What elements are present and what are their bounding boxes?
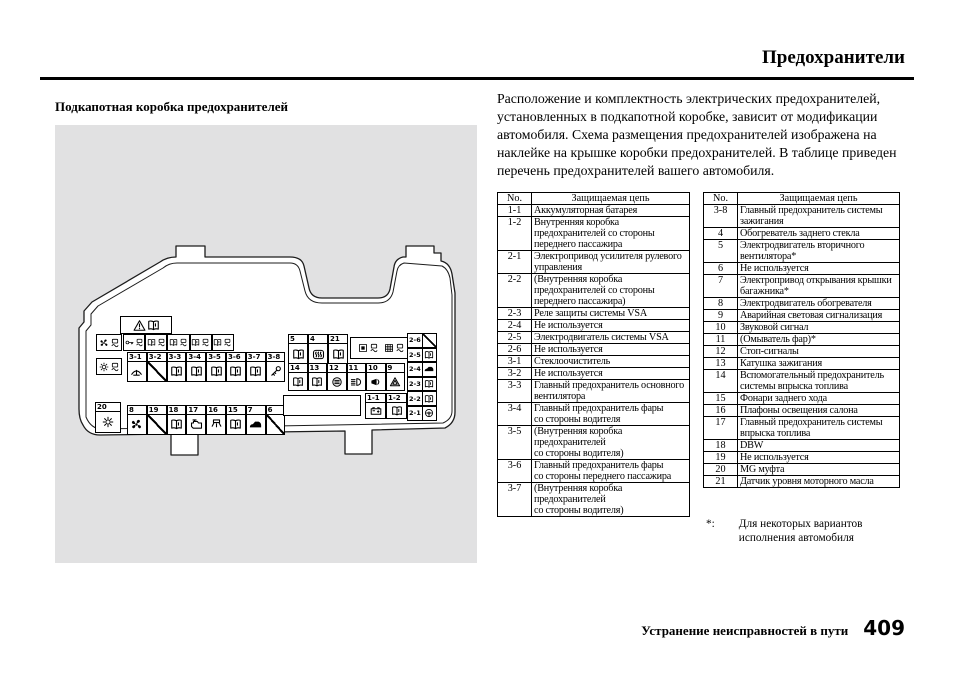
battery-icon	[370, 405, 382, 417]
fuse-slot-symbol	[328, 373, 346, 390]
section-heading: Подкапотная коробка предохранителей	[55, 99, 288, 115]
table-row: 3-8Главный предохранитель системы зажига…	[704, 205, 900, 228]
fuse-circuit: Вспомогательный предохранитель системы в…	[738, 370, 900, 393]
empty-slot	[148, 415, 166, 434]
fuse-no: 9	[704, 310, 738, 322]
fuse-no: 20	[704, 464, 738, 476]
fuse-slot-number: 2-2	[408, 392, 423, 405]
fuse-no: 3-7	[498, 483, 532, 517]
fuse-slot-1-2: 1-2	[386, 393, 407, 419]
table-header-row: No. Защищаемая цепь	[498, 193, 690, 205]
fuse-slot-2-4: 2-4	[407, 362, 437, 377]
fuse-slot-number: 20	[96, 403, 120, 412]
fuse-slot-symbol	[309, 344, 327, 364]
fuse-slot-number: 3-5	[207, 353, 225, 362]
table-row: 14Вспомогательный предохранитель системы…	[704, 370, 900, 393]
empty-slot	[423, 334, 436, 347]
fuse-slot-symbol	[423, 378, 436, 391]
fuse-slot-2-2: 2-2	[407, 391, 437, 406]
fuse-no: 2-1	[498, 251, 532, 274]
icon-pair-cell	[123, 334, 145, 351]
fuse-no: 13	[704, 358, 738, 370]
table-row: 10Звуковой сигнал	[704, 322, 900, 334]
fuse-slot-number: 11	[348, 364, 366, 373]
table-row: 3-4Главный предохранитель фары со сторон…	[498, 403, 690, 426]
fuse-slot-symbol	[387, 373, 405, 390]
blank-label-box	[283, 395, 361, 416]
fuse-icon	[135, 338, 144, 347]
table-row: 4Обогреватель заднего стекла	[704, 228, 900, 240]
fuse-no: 16	[704, 405, 738, 417]
fuse-slot-13: 13	[308, 363, 328, 391]
footer-section-title: Устранение неисправностей в пути	[641, 623, 848, 639]
fuse-slot-number: 3-7	[247, 353, 265, 362]
trunk-icon	[424, 364, 434, 374]
fuse-slot-symbol	[187, 362, 205, 381]
grid-icon	[384, 343, 394, 353]
fuse-slot-number: 4	[309, 335, 327, 344]
headlight-icon	[350, 376, 362, 388]
table-row: 7Электропривод открывания крышки багажни…	[704, 275, 900, 298]
column-header-circuit: Защищаемая цепь	[738, 193, 900, 205]
fuse-slot-3-1: 3-1	[127, 352, 147, 382]
hazard-icon	[389, 376, 401, 388]
fuse-no: 14	[704, 370, 738, 393]
fuse-slot-3-6: 3-6	[226, 352, 246, 382]
table-row: 9Аварийная световая сигнализация	[704, 310, 900, 322]
fuse-slot-symbol	[227, 415, 245, 434]
horn-icon	[370, 376, 382, 388]
table-row: 2-4Не используется	[498, 320, 690, 332]
book-icon	[311, 376, 323, 388]
wiper-icon	[130, 365, 143, 378]
table-row: 3-6Главный предохранитель фары со сторон…	[498, 460, 690, 483]
fuse-no: 21	[704, 476, 738, 488]
fuse-slot-2-5: 2-5	[407, 348, 437, 363]
fuse-slot-symbol	[148, 415, 166, 434]
fuse-circuit: (Омыватель фар)*	[738, 334, 900, 346]
fuse-circuit: Аварийная световая сигнализация	[738, 310, 900, 322]
ignition-icon	[269, 365, 282, 378]
fuse-slot-1-1: 1-1	[365, 393, 386, 419]
fuse-circuit: Обогреватель заднего стекла	[738, 228, 900, 240]
book-icon	[424, 379, 434, 389]
fuse-slot-3-4: 3-4	[186, 352, 206, 382]
fuse-slot-symbol	[423, 349, 436, 362]
fuse-slot-number: 15	[227, 406, 245, 415]
fuse-no: 4	[704, 228, 738, 240]
fuse-slot-number: 17	[187, 406, 205, 415]
fuse-no: 8	[704, 298, 738, 310]
fuse-table-left-body: 1-1Аккумуляторная батарея1-2Внутренняя к…	[498, 205, 690, 517]
book-icon	[170, 365, 183, 378]
fuse-no: 3-3	[498, 380, 532, 403]
fuse-icon	[110, 338, 120, 348]
table-row: 6Не используется	[704, 263, 900, 275]
left-icon-pair	[96, 334, 122, 351]
fuse-slot-symbol	[366, 403, 385, 418]
fuse-slot-symbol	[168, 415, 186, 434]
fuse-slot-number: 13	[309, 364, 327, 373]
fuse-slot-number: 3-1	[128, 353, 146, 362]
fuse-slot-2-6: 2-6	[407, 333, 437, 348]
icon-pair	[384, 343, 405, 353]
fuse-slot-11: 11	[347, 363, 367, 391]
fuse-circuit: (Внутренняя коробка предохранителей со с…	[532, 274, 690, 308]
fuse-circuit: Электропривод усилителя рулевого управле…	[532, 251, 690, 274]
table-row: 17Главный предохранитель системы впрыска…	[704, 417, 900, 440]
fuse-circuit: Стоп-сигналы	[738, 346, 900, 358]
key-icon	[125, 338, 134, 347]
fuse-circuit: DBW	[738, 440, 900, 452]
icon-pair-cell	[145, 334, 167, 351]
table-row: 5Электродвигатель вторичного вентилятора…	[704, 240, 900, 263]
footnote-marker: *:	[706, 517, 715, 545]
fuse-slot-3-7: 3-7	[246, 352, 266, 382]
fan-icon	[130, 418, 143, 431]
column-header-no: No.	[498, 193, 532, 205]
sun-icon	[99, 362, 109, 372]
fuse-slot-2-3: 2-3	[407, 377, 437, 392]
fuse-no: 2-6	[498, 344, 532, 356]
fuse-slot-12: 12	[327, 363, 347, 391]
fuse-slot-symbol	[247, 362, 265, 381]
fuse-circuit: Электродвигатель вторичного вентилятора*	[738, 240, 900, 263]
fuse-slot-3-2: 3-2	[147, 352, 167, 382]
table-row: 3-1Стеклоочиститель	[498, 356, 690, 368]
fuse-slot-5: 5	[288, 334, 308, 365]
box-icon	[358, 343, 368, 353]
fuse-slot-19: 19	[147, 405, 167, 435]
table-row: 2-5Электродвигатель системы VSA	[498, 332, 690, 344]
fuse-slot-symbol	[289, 344, 307, 364]
fuse-circuit: Электродвигатель системы VSA	[532, 332, 690, 344]
fuse-slot-10: 10	[366, 363, 386, 391]
fuse-circuit: Не используется	[738, 452, 900, 464]
warning-label-box	[120, 316, 172, 334]
fuse-slot-number: 12	[328, 364, 346, 373]
fuse-slot-number: 14	[289, 364, 307, 373]
table-row: 21Датчик уровня моторного масла	[704, 476, 900, 488]
fuse-slot-8: 8	[127, 405, 147, 435]
sun-icon	[102, 416, 114, 428]
fuse-icon	[179, 338, 188, 347]
book-icon	[210, 365, 223, 378]
book-icon	[229, 418, 242, 431]
book-icon	[147, 319, 160, 332]
book-icon	[332, 348, 345, 361]
fuse-slot-number: 2-1	[408, 407, 423, 420]
fuse-circuit: (Внутренняя коробка предохранителей со с…	[532, 426, 690, 460]
fuse-slot-3-3: 3-3	[167, 352, 187, 382]
fuse-no: 12	[704, 346, 738, 358]
fuse-circuit: Фонари заднего хода	[738, 393, 900, 405]
fuse-no: 15	[704, 393, 738, 405]
fuse-slot-symbol	[128, 415, 146, 434]
fuse-no: 3-6	[498, 460, 532, 483]
fuse-slot-number: 16	[207, 406, 225, 415]
fuse-slot-number: 1-2	[387, 394, 406, 403]
fuse-slot-number: 2-6	[408, 334, 423, 347]
fuse-circuit: Главный предохранитель фары со стороны в…	[532, 403, 690, 426]
fuse-slot-symbol	[329, 344, 347, 364]
fuse-slot-number: 2-3	[408, 378, 423, 391]
steering-icon	[424, 408, 434, 418]
page-title: Предохранители	[762, 47, 905, 69]
table-row: 2-1Электропривод усилителя рулевого упра…	[498, 251, 690, 274]
fuse-slot-symbol	[367, 373, 385, 390]
fuse-slot-14: 14	[288, 363, 308, 391]
table-row: 8Электродвигатель обогревателя	[704, 298, 900, 310]
fuse-slot-symbol	[96, 412, 120, 432]
fuse-circuit: Главный предохранитель фары со стороны п…	[532, 460, 690, 483]
fuse-slot-9: 9	[386, 363, 406, 391]
right-icon-box	[350, 337, 412, 359]
fuse-slot-symbol	[423, 334, 436, 347]
fuse-no: 2-5	[498, 332, 532, 344]
fuse-slot-15: 15	[226, 405, 246, 435]
fuse-no: 11	[704, 334, 738, 346]
fuse-slot-4: 4	[308, 334, 328, 365]
fuse-slot-number: 3-6	[227, 353, 245, 362]
fuse-slot-number: 3-3	[168, 353, 186, 362]
book-icon	[391, 405, 403, 417]
table-row: 3-5(Внутренняя коробка предохранителей с…	[498, 426, 690, 460]
table-header-row: No. Защищаемая цепь	[704, 193, 900, 205]
fuse-slot-21: 21	[328, 334, 348, 365]
fuse-slot-number: 2-5	[408, 349, 423, 362]
fuse-icon	[201, 338, 210, 347]
book-icon	[213, 338, 222, 347]
warning-icon	[133, 319, 146, 332]
fuse-icon	[157, 338, 166, 347]
book-icon	[424, 394, 434, 404]
icon-pair-cell	[167, 334, 189, 351]
empty-slot	[267, 415, 285, 434]
column-header-circuit: Защищаемая цепь	[532, 193, 690, 205]
fuse-circuit: Звуковой сигнал	[738, 322, 900, 334]
fuse-slot-number: 3-4	[187, 353, 205, 362]
intro-paragraph: Расположение и комплектность электрическ…	[497, 90, 909, 180]
table-row: 15Фонари заднего хода	[704, 393, 900, 405]
fuse-no: 3-8	[704, 205, 738, 228]
footnote: *: Для некоторых вариантов исполнения ав…	[706, 517, 863, 545]
fuse-circuit: Не используется	[532, 344, 690, 356]
fuse-slot-number: 3-8	[267, 353, 285, 362]
fuse-slot-symbol	[148, 362, 166, 381]
book-icon	[190, 365, 203, 378]
fuse-no: 2-2	[498, 274, 532, 308]
footnote-text: Для некоторых вариантов исполнения автом…	[739, 517, 863, 545]
book-icon	[191, 338, 200, 347]
book-icon	[292, 348, 305, 361]
fuse-icon	[223, 338, 232, 347]
fuse-slot-symbol	[267, 415, 285, 434]
fuse-slot-2-1: 2-1	[407, 406, 437, 421]
fuse-circuit: Датчик уровня моторного масла	[738, 476, 900, 488]
left-icon-pair	[96, 358, 122, 375]
fuse-table-right-body: 3-8Главный предохранитель системы зажига…	[704, 205, 900, 488]
table-row: 1-2Внутренняя коробка предохранителей со…	[498, 217, 690, 251]
fuse-slot-number: 6	[267, 406, 285, 415]
fuse-slot-symbol	[207, 415, 225, 434]
book-icon	[170, 418, 183, 431]
fuse-circuit: Плафоны освещения салона	[738, 405, 900, 417]
fuse-slot-symbol	[423, 392, 436, 405]
table-row: 2-2(Внутренняя коробка предохранителей с…	[498, 274, 690, 308]
fuse-circuit: Реле защиты системы VSA	[532, 308, 690, 320]
fuse-circuit: Не используется	[532, 320, 690, 332]
fuse-slot-number: 10	[367, 364, 385, 373]
fuse-slot-number: 21	[329, 335, 347, 344]
fuse-circuit: Стеклоочиститель	[532, 356, 690, 368]
fuse-circuit: Катушка зажигания	[738, 358, 900, 370]
empty-slot	[148, 362, 166, 381]
fuse-no: 17	[704, 417, 738, 440]
fuse-no: 5	[704, 240, 738, 263]
book-icon	[229, 365, 242, 378]
fuse-slot-20: 20	[95, 402, 121, 433]
fuse-no: 2-4	[498, 320, 532, 332]
book-icon	[169, 338, 178, 347]
table-row: 13Катушка зажигания	[704, 358, 900, 370]
table-row: 16Плафоны освещения салона	[704, 405, 900, 417]
fuse-circuit: Аккумуляторная батарея	[532, 205, 690, 217]
icon-pair	[358, 343, 379, 353]
fuse-panel: 203-13-23-33-43-53-63-73-881918171615765…	[55, 125, 477, 563]
fuse-circuit: Не используется	[532, 368, 690, 380]
fuse-no: 3-2	[498, 368, 532, 380]
washer-icon	[331, 376, 343, 388]
fuse-slot-3-5: 3-5	[206, 352, 226, 382]
fuse-icon	[395, 343, 405, 353]
book-icon	[249, 365, 262, 378]
fuse-circuit: Электродвигатель обогревателя	[738, 298, 900, 310]
fuse-circuit: Электропривод открывания крышки багажник…	[738, 275, 900, 298]
fuse-no: 1-1	[498, 205, 532, 217]
fuse-circuit: MG муфта	[738, 464, 900, 476]
fuse-no: 3-1	[498, 356, 532, 368]
table-row: 11(Омыватель фар)*	[704, 334, 900, 346]
fuse-slot-symbol	[168, 362, 186, 381]
book-icon	[292, 376, 304, 388]
fuse-slot-symbol	[227, 362, 245, 381]
fuse-slot-3-8: 3-8	[266, 352, 286, 382]
fuse-slot-number: 2-4	[408, 363, 423, 376]
page-number: 409	[863, 616, 905, 640]
title-rule	[40, 77, 914, 80]
fuse-slot-number: 5	[289, 335, 307, 344]
table-row: 18DBW	[704, 440, 900, 452]
fuse-circuit: (Внутренняя коробка предохранителей со с…	[532, 483, 690, 517]
fuse-slot-symbol	[267, 362, 285, 381]
fuse-slot-number: 18	[168, 406, 186, 415]
fuse-circuit: Главный предохранитель системы впрыска т…	[738, 417, 900, 440]
icon-pair-cell	[212, 334, 234, 351]
defroster-icon	[312, 348, 325, 361]
fuse-slot-symbol	[423, 407, 436, 420]
fuse-icon	[369, 343, 379, 353]
fuse-slot-16: 16	[206, 405, 226, 435]
fuse-no: 1-2	[498, 217, 532, 251]
fuse-no: 2-3	[498, 308, 532, 320]
table-row: 12Стоп-сигналы	[704, 346, 900, 358]
fuse-box-diagram: 203-13-23-33-43-53-63-73-881918171615765…	[55, 125, 477, 563]
table-row: 3-7(Внутренняя коробка предохранителей с…	[498, 483, 690, 517]
table-row: 2-6Не используется	[498, 344, 690, 356]
fuse-slot-symbol	[128, 362, 146, 381]
book-icon	[147, 338, 156, 347]
fuse-slot-symbol	[187, 415, 205, 434]
fuse-slot-number: 3-2	[148, 353, 166, 362]
icon-pair-cell	[190, 334, 212, 351]
fuse-circuit: Не используется	[738, 263, 900, 275]
fuse-slot-18: 18	[167, 405, 187, 435]
fuse-circuit: Внутренняя коробка предохранителей со ст…	[532, 217, 690, 251]
table-row: 19Не используется	[704, 452, 900, 464]
fuse-circuit: Главный предохранитель основного вентиля…	[532, 380, 690, 403]
fuse-table-right: No. Защищаемая цепь 3-8Главный предохран…	[703, 192, 900, 488]
fuse-slot-number: 19	[148, 406, 166, 415]
fuse-slot-17: 17	[186, 405, 206, 435]
book-icon	[424, 350, 434, 360]
fuse-slot-symbol	[247, 415, 265, 434]
fuse-table-left: No. Защищаемая цепь 1-1Аккумуляторная ба…	[497, 192, 690, 517]
table-row: 2-3Реле защиты системы VSA	[498, 308, 690, 320]
fuse-slot-symbol	[289, 373, 307, 390]
fuse-slot-number: 9	[387, 364, 405, 373]
fuse-slot-symbol	[309, 373, 327, 390]
fuse-slot-symbol	[387, 403, 406, 418]
fuse-slot-number: 1-1	[366, 394, 385, 403]
fuse-no: 3-5	[498, 426, 532, 460]
fuse-no: 3-4	[498, 403, 532, 426]
fuse-no: 10	[704, 322, 738, 334]
page-footer: Устранение неисправностей в пути 409	[641, 616, 905, 640]
fuse-circuit: Главный предохранитель системы зажигания	[738, 205, 900, 228]
fuse-no: 19	[704, 452, 738, 464]
column-header-no: No.	[704, 193, 738, 205]
fuse-slot-symbol	[207, 362, 225, 381]
fan-icon	[99, 338, 109, 348]
fuse-icon	[110, 362, 120, 372]
fuse-slot-symbol	[423, 363, 436, 376]
fuse-no: 6	[704, 263, 738, 275]
fuse-no: 7	[704, 275, 738, 298]
fuse-slot-number: 7	[247, 406, 265, 415]
fuse-slot-7: 7	[246, 405, 266, 435]
cabin-light-icon	[210, 418, 223, 431]
engine-icon	[190, 418, 203, 431]
trunk-icon	[249, 418, 262, 431]
table-row: 3-3Главный предохранитель основного вент…	[498, 380, 690, 403]
table-row: 1-1Аккумуляторная батарея	[498, 205, 690, 217]
table-row: 3-2Не используется	[498, 368, 690, 380]
fuse-slot-symbol	[348, 373, 366, 390]
table-row: 20MG муфта	[704, 464, 900, 476]
fuse-no: 18	[704, 440, 738, 452]
fuse-slot-number: 8	[128, 406, 146, 415]
